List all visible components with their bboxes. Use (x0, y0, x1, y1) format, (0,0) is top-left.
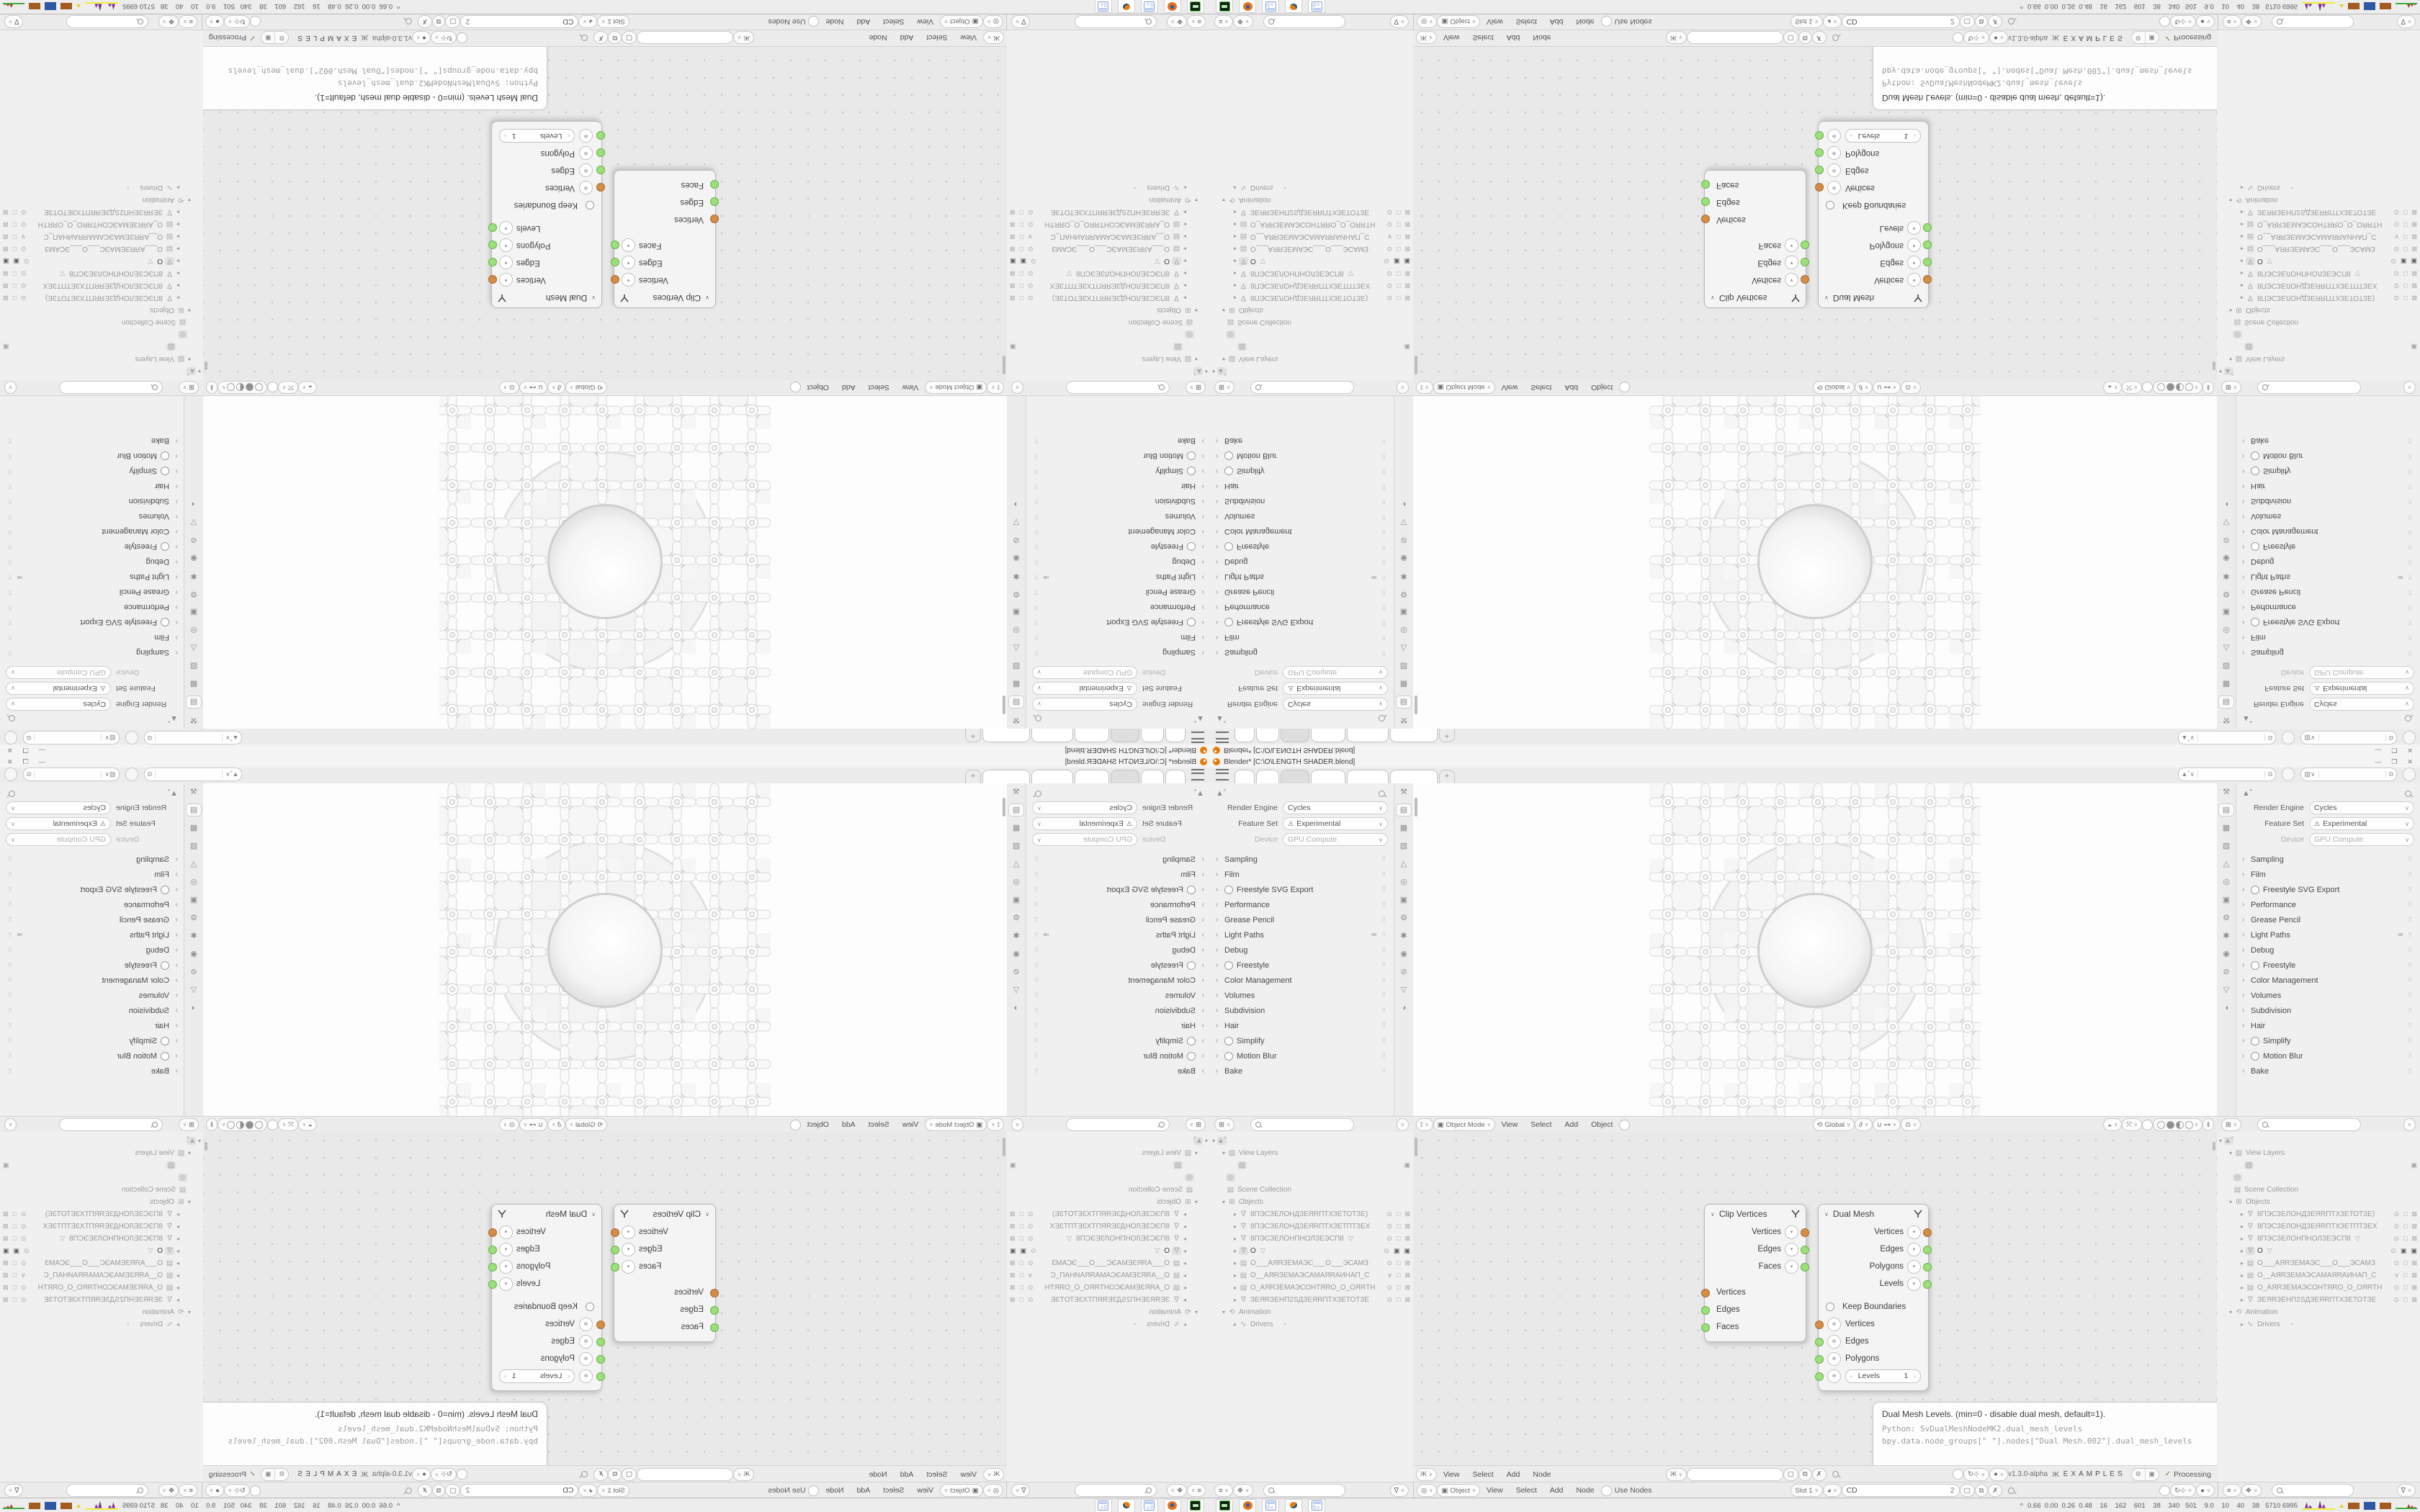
minimize-button[interactable]: — (2375, 747, 2381, 755)
expander-icon[interactable]: ^ (2020, 3, 2023, 11)
device-dropdown[interactable]: GPU Compute∨ (6, 666, 111, 679)
socket-polygons-in[interactable] (596, 148, 605, 157)
section-debug[interactable]: ›Debug⠿ (2242, 554, 2414, 570)
section-freestyle[interactable]: ›Freestyle⠿ (6, 539, 178, 554)
drivers-label[interactable]: Drivers (1250, 184, 1273, 192)
editor-type-button[interactable]: ⊞∨ (1186, 381, 1206, 394)
outliner-object-row[interactable]: ▸∇8ПЭСЗЕЛОНПНОЛЗЕЭСП8▽⊙□⊠ (1007, 1233, 1210, 1245)
shield-button[interactable]: ▢ (445, 15, 460, 28)
object-tab-icon[interactable]: ▣ (1397, 894, 1411, 906)
add-menu[interactable]: Add (1543, 17, 1570, 26)
draw-mode-button[interactable]: ●∨ (1989, 32, 2008, 45)
taskbar-calculator-app[interactable] (1262, 1499, 1279, 1512)
options-button[interactable]: ∨ (1011, 381, 1023, 394)
feature-set-dropdown[interactable]: ⚠ Experimental ∨ (1032, 817, 1137, 830)
menu-hamburger-icon[interactable] (1216, 769, 1229, 780)
new-scene-button[interactable] (125, 731, 138, 744)
view-layer-tab-icon[interactable]: ▧ (1397, 660, 1411, 672)
node-menu[interactable]: Node (1569, 17, 1600, 26)
workspace-tab-6[interactable] (1390, 770, 1438, 783)
link-menu-button[interactable]: ⊕ (1827, 181, 1841, 195)
node-dual-mesh[interactable]: ∨ Dual Mesh Vertices▾ Edges▾ Polygons▾ L… (491, 121, 602, 308)
material-shading-icon[interactable] (2176, 1121, 2184, 1129)
view-layer-tab-icon[interactable]: ▧ (187, 660, 201, 672)
filter-button[interactable]: ∇∨ (1390, 1484, 1409, 1497)
outliner-active-object-row[interactable]: ▸∇O▽⊙▣▣ (1210, 1245, 1413, 1257)
camera-toggle-icon[interactable]: ▣ (1404, 343, 1410, 351)
overlays-toggle-icon[interactable]: ⤧∨ (278, 1118, 298, 1131)
display-mode-button[interactable]: ≡∨ (1187, 15, 1206, 28)
add-workspace-button[interactable]: + (965, 729, 981, 742)
scene-root-icon[interactable]: ▲˚ (1217, 367, 1227, 375)
scene-icon[interactable]: ▲˚∨ (2179, 734, 2199, 742)
taskbar-calculator2-app[interactable] (1308, 1499, 1325, 1512)
view-menu[interactable]: View (910, 17, 940, 26)
collapse-icon[interactable]: ∨ (1824, 295, 1829, 302)
editor-type-button[interactable]: Ж∨ (1416, 1468, 1437, 1481)
node-editor-scrollbar[interactable] (1415, 356, 1417, 374)
workspace-tab-1[interactable] (1234, 729, 1255, 742)
section-color-management[interactable]: ›Color Management⠿ (1216, 973, 1388, 988)
world-icon[interactable]: ◎ (1226, 330, 1235, 338)
scene-icon[interactable]: ▲˚∨ (222, 734, 242, 742)
view-layer-tab-icon[interactable]: ▧ (187, 840, 201, 852)
section-motion-blur[interactable]: ›Motion Blur⠿ (1032, 449, 1204, 464)
animation-label[interactable]: Animation (1149, 196, 1181, 204)
material-name-field[interactable]: CD2 (460, 15, 578, 28)
properties-search[interactable] (1250, 381, 1354, 394)
unlink-icon[interactable]: ✗ (1812, 32, 1827, 45)
viewport-3d[interactable] (1413, 396, 2217, 729)
socket-vertices-out[interactable] (1801, 1228, 1809, 1237)
shader-type-dropdown[interactable]: ▣ Object∨ (940, 15, 983, 28)
filter-collection-button[interactable]: ❖∨ (158, 1484, 179, 1497)
taskbar-firefox-app[interactable] (1164, 1499, 1181, 1512)
section-color-management[interactable]: ›Color Management⠿ (1032, 524, 1204, 539)
node-tree-name-field[interactable] (637, 1468, 733, 1481)
scene-root-icon[interactable]: ▲˚ (1193, 1137, 1203, 1145)
world-tab-icon[interactable]: ◎ (187, 624, 201, 636)
pin-icon[interactable] (581, 35, 588, 41)
toggle-icon[interactable] (1224, 452, 1233, 461)
material-tab-icon[interactable]: ◑ (1009, 498, 1023, 510)
world-tab-icon[interactable]: ◎ (1397, 624, 1411, 636)
node-menu[interactable]: Node (819, 17, 850, 26)
tool-tab-icon[interactable]: ⚒ (1009, 714, 1023, 726)
socket-levels-in[interactable] (596, 131, 605, 140)
filter-button[interactable]: ∇∨ (2397, 1484, 2416, 1497)
toggle-icon[interactable] (1224, 618, 1233, 627)
disable-render-icon[interactable]: ⊠ (1010, 294, 1016, 302)
socket-polygons-in[interactable] (1815, 1355, 1824, 1364)
taskbar-blender-app[interactable] (1118, 1499, 1135, 1512)
view-layer-tab-icon[interactable]: ▧ (2219, 660, 2233, 672)
device-dropdown[interactable]: GPU Compute∨ (2309, 666, 2414, 679)
outliner-object-row[interactable]: ▸▤О__АЯRЗЕМАЭСАМАЯRАИНАП_С∨□⊠ (1007, 230, 1210, 243)
keep-boundaries-toggle[interactable] (1826, 1302, 1834, 1311)
workspace-tab-3-active[interactable] (1281, 729, 1309, 742)
menu-hamburger-icon[interactable] (1191, 732, 1204, 743)
editor-type-button[interactable]: ⊞∨ (2221, 1118, 2241, 1131)
section-freestyle-svg[interactable]: ›Freestyle SVG Export⠿ (6, 615, 178, 630)
device-dropdown[interactable]: GPU Compute ∨ (1032, 833, 1137, 846)
use-nodes-checkbox[interactable] (808, 17, 819, 27)
object-tab-icon[interactable]: ▣ (2219, 894, 2233, 906)
socket-vertices-in[interactable] (710, 1289, 719, 1297)
material-shading-icon[interactable] (2176, 384, 2184, 392)
section-grease-pencil[interactable]: ›Grease Pencil⠿ (1216, 912, 1388, 927)
data-tab-icon[interactable]: ▽ (187, 984, 201, 996)
viewport-scrollbar[interactable] (1415, 798, 1417, 816)
section-volumes[interactable]: ›Volumes⠿ (6, 988, 178, 1003)
workspace-tab-2[interactable] (1256, 770, 1279, 783)
add-workspace-button[interactable]: + (1439, 729, 1455, 742)
node-editor-scrollbar[interactable] (2213, 361, 2215, 370)
outliner-search[interactable] (66, 15, 148, 28)
section-light-paths[interactable]: ›Light Paths≔⠿ (6, 570, 178, 585)
overlay-button[interactable]: ●∨ (2196, 15, 2215, 28)
copy-scene-icon[interactable]: ⧉ (2264, 734, 2275, 742)
preset-buttons[interactable]: ⚙▣ (261, 32, 289, 45)
material-shading-icon[interactable] (236, 384, 244, 392)
increment-icon[interactable]: › (504, 1373, 506, 1380)
disable-viewport-icon[interactable]: □ (1020, 294, 1023, 302)
link-menu-button[interactable]: ⊕ (1827, 1318, 1841, 1331)
output-tab-icon[interactable]: ▦ (1397, 678, 1411, 690)
editor-type-button[interactable]: ⊞∨ (1214, 1118, 1234, 1131)
copy-view-layer-icon[interactable]: ⧉ (2385, 734, 2396, 742)
presets-icon[interactable]: ≔ (1039, 931, 1049, 939)
render-tab-icon[interactable]: ▤ (2219, 804, 2233, 816)
fake-user-button[interactable]: ▢ (1783, 32, 1798, 45)
search-circle-button[interactable] (790, 1120, 801, 1130)
section-freestyle[interactable]: ›Freestyle⠿ (1216, 539, 1388, 554)
physics-tab-icon[interactable]: ◉ (187, 552, 201, 564)
outliner-object-row[interactable]: ▸∇8ПЭСЗЕЛОНДЗЕЯRПТХЗЕТОТЗЕ)⊙□⊠ (2217, 1208, 2420, 1220)
keep-boundaries-toggle[interactable] (1826, 201, 1834, 210)
output-tab-icon[interactable]: ▦ (2219, 678, 2233, 690)
socket-vertices-out[interactable] (1923, 275, 1932, 284)
viewport-3d[interactable] (203, 396, 1007, 729)
view-layer-name-field[interactable] (2319, 732, 2385, 744)
outliner-active-object-row[interactable]: ▸∇O▽⊙▣▣ (0, 1245, 203, 1257)
overlay-button[interactable]: ●∨ (205, 15, 224, 28)
section-subdivision[interactable]: ›Subdivision⠿ (6, 1003, 178, 1018)
object-tab-icon[interactable]: ▣ (1009, 606, 1023, 618)
socket-menu-button[interactable]: ▾ (622, 1225, 635, 1239)
tree-type-button[interactable]: Ж∨ (1666, 1468, 1687, 1481)
render-engine-dropdown[interactable]: Cycles∨ (6, 698, 111, 711)
workspace-tab-4[interactable] (1075, 729, 1109, 742)
world-tab-icon[interactable]: ◎ (1009, 876, 1023, 888)
update-layout-button[interactable]: ↻⊹∨ (1963, 1468, 1989, 1481)
animation-label[interactable]: Animation (1149, 1308, 1181, 1316)
select-menu[interactable]: Select (877, 1486, 910, 1495)
objects-collection-label[interactable]: Objects (1239, 1198, 1263, 1206)
data-tab-icon[interactable]: ▽ (1009, 984, 1023, 996)
new-view-layer-button[interactable] (4, 731, 17, 744)
transform-orientation-dropdown[interactable]: ⟲ Global∨ (1813, 381, 1855, 394)
section-bake[interactable]: ›Bake⠿ (6, 433, 178, 449)
outliner-object-row[interactable]: ▸∇ЗЕЯRЗЕНП2SДЗЕЯRПТХЗЕТОТЗЕ⊙□⊠ (1007, 206, 1210, 218)
tool-tab-icon[interactable]: ⚒ (2219, 786, 2233, 798)
constraints-tab-icon[interactable]: ⊘ (1397, 966, 1411, 978)
socket-vertices-out[interactable] (1923, 1228, 1932, 1237)
outliner-object-row[interactable]: ▸∇8ПЭСЗЕЛОНДЗЕЯRПТХЗЕТПТЗЕХ⊙□⊠ (1210, 279, 1413, 292)
device-dropdown[interactable]: GPU Compute ∨ (1283, 666, 1388, 679)
socket-edges-out[interactable] (1801, 1246, 1809, 1254)
modifiers-tab-icon[interactable]: ⚙ (187, 588, 201, 600)
add-menu[interactable]: Add (1558, 1120, 1585, 1129)
outliner-object-row[interactable]: ▸▤О__АЯRЗЕМАЭСАМАЯRАИНАП_С∨□⊠ (2217, 230, 2420, 243)
outliner-active-object-row[interactable]: ▸∇O▽⊙▣▣ (1007, 255, 1210, 267)
section-freestyle-svg[interactable]: ›Freestyle SVG Export⠿ (1032, 615, 1204, 630)
section-volumes[interactable]: ›Volumes⠿ (1216, 988, 1388, 1003)
add-workspace-button[interactable]: + (1439, 770, 1455, 783)
section-simplify[interactable]: ›Simplify⠿ (1216, 1033, 1388, 1048)
hide-icon[interactable]: ⊙ (1028, 1210, 1034, 1218)
minimize-button[interactable]: — (39, 758, 45, 766)
shading-mode-switch[interactable]: ∨ (2153, 1118, 2202, 1131)
render-tab-icon[interactable]: ▤ (1009, 804, 1023, 816)
sverchok-node-editor[interactable]: ∨ Clip Vertices Vertices▾ Edges▾ Faces▾ … (1413, 1132, 2217, 1465)
section-sampling[interactable]: ›Sampling⠿ (1216, 852, 1388, 867)
select-menu[interactable]: Select (862, 383, 896, 392)
section-sampling[interactable]: ›Sampling⠿ (2242, 645, 2414, 660)
section-film[interactable]: ›Film⠿ (2242, 867, 2414, 882)
material-shading-icon[interactable] (236, 1121, 244, 1129)
options-button[interactable]: ∨ (1397, 381, 1409, 394)
socket-levels-out[interactable] (488, 1280, 497, 1289)
display-mode-button[interactable]: ≡∨ (179, 1484, 197, 1497)
add-workspace-button[interactable]: + (965, 770, 981, 783)
outliner-object-row[interactable]: ▸▤О_АЯRЗЕМАЭСОНТЯRО_О_ОЯRТН⊙□⊠ (1007, 218, 1210, 230)
section-performance[interactable]: ›Performance⠿ (6, 897, 178, 912)
node-editor-scrollbar[interactable] (2213, 1142, 2215, 1151)
view-layer-icon[interactable]: ▧∨ (101, 770, 118, 778)
socket-polygons-out[interactable] (488, 240, 497, 249)
modifiers-tab-icon[interactable]: ⚙ (1009, 588, 1023, 600)
section-color-management[interactable]: ›Color Management⠿ (6, 524, 178, 539)
snap-magnet-icon[interactable]: ∪ ⊶∨ (519, 1118, 547, 1131)
taskbar-firefox-app[interactable] (1164, 0, 1181, 14)
shading-mode-switch[interactable]: ∨ (2153, 381, 2202, 394)
viewport-scrollbar[interactable] (1003, 696, 1005, 714)
add-menu[interactable]: Add (894, 34, 920, 42)
unlink-icon[interactable]: ✗ (593, 32, 608, 45)
material-tab-icon[interactable]: ◑ (1397, 1002, 1411, 1014)
editor-type-button[interactable]: Ж∨ (983, 32, 1004, 45)
section-light-paths[interactable]: ›Light Paths≔⠿ (1032, 927, 1204, 942)
section-motion-blur[interactable]: ›Motion Blur⠿ (2242, 449, 2414, 464)
view-layer-tab-icon[interactable]: ▧ (1009, 660, 1023, 672)
view-layer-icon[interactable]: ▧ (1173, 343, 1183, 351)
feature-set-dropdown[interactable]: ⚠Experimental∨ (6, 682, 111, 695)
close-button[interactable]: ✕ (2407, 747, 2413, 755)
display-mode-button[interactable]: ≡∨ (1214, 15, 1233, 28)
section-film[interactable]: ›Film⠿ (1216, 630, 1388, 645)
solid-shading-icon[interactable] (2166, 384, 2174, 392)
section-subdivision[interactable]: ›Subdivision⠿ (2242, 494, 2414, 509)
circle-button[interactable] (457, 1469, 467, 1480)
objects-collection-label[interactable]: Objects (1157, 1198, 1181, 1206)
tree-type-button[interactable]: Ж∨ (733, 32, 754, 45)
snap-node-button[interactable]: ↻⊹∨ (2170, 15, 2196, 28)
section-light-paths[interactable]: ›Light Paths≔⠿ (2242, 570, 2414, 585)
socket-edges-in[interactable] (1701, 197, 1710, 206)
search-circle-button[interactable] (1619, 382, 1630, 393)
taskbar-blender-app[interactable] (1118, 0, 1135, 14)
section-simplify[interactable]: ›Simplify⠿ (1032, 1033, 1204, 1048)
section-grease-pencil[interactable]: ›Grease Pencil⠿ (2242, 585, 2414, 600)
increment-icon[interactable]: › (1914, 133, 1916, 140)
constraints-tab-icon[interactable]: ⊘ (1009, 966, 1023, 978)
socket-vertices-out[interactable] (1801, 275, 1809, 284)
physics-tab-icon[interactable]: ◉ (187, 948, 201, 960)
proportional-edit-icon[interactable]: ⊙ ∨ (1901, 381, 1921, 394)
outliner-object-row[interactable]: ▸▤О_АЯRЗЕМАЭСОНТЯRО_О_ОЯRТН⊙□⊠ (1210, 218, 1413, 230)
pin-icon[interactable] (1035, 791, 1041, 797)
outliner-object-row[interactable]: ▸∇ЗЕЯRЗЕНП2SДЗЕЯRПТХЗЕТОТЗЕ⊙□⊠ (0, 206, 203, 218)
examples-menu[interactable]: EXAMPLES (295, 1470, 357, 1478)
node-editor-scrollbar[interactable] (1003, 356, 1005, 374)
device-dropdown[interactable]: GPU Compute ∨ (1032, 666, 1137, 679)
section-film[interactable]: ›Film⠿ (6, 630, 178, 645)
section-subdivision[interactable]: ›Subdivision⠿ (6, 494, 178, 509)
disable-viewport-icon[interactable]: □ (1397, 294, 1400, 302)
snap-node-button[interactable]: ↻⊹∨ (2170, 1484, 2196, 1497)
workspace-tab-5[interactable] (1347, 770, 1389, 783)
scene-tab-icon[interactable]: △ (1009, 642, 1023, 654)
outliner-object-row[interactable]: ▸▤О___АЯRЗЕМАЭС___О___ЭСАМЗ⊙□⊠ (1007, 1257, 1210, 1269)
material-tab-icon[interactable]: ◑ (2219, 498, 2233, 510)
section-hair[interactable]: ›Hair⠿ (1216, 479, 1388, 494)
proportional-edit-icon[interactable]: ⊙ ∨ (1901, 1118, 1921, 1131)
outliner-active-object-row[interactable]: ▸∇O▽⊙▣▣ (2217, 255, 2420, 267)
socket-vertices-out[interactable] (488, 1228, 497, 1237)
workspace-tab-6[interactable] (1390, 729, 1438, 742)
outliner-object-row[interactable]: ▸∇8ПЭСЗЕЛОНДЗЕЯRПТХЗЕТОТЗЕ)⊙□⊠ (2217, 292, 2420, 304)
filter-collection-button[interactable]: ❖∨ (1167, 15, 1188, 28)
mode-dropdown[interactable]: ▣ Object Mode∨ (1433, 381, 1495, 394)
outliner-object-row[interactable]: ▸▤О___АЯRЗЕМАЭС___О___ЭСАМЗ⊙□⊠ (1210, 243, 1413, 255)
node-menu[interactable]: Node (819, 1486, 850, 1495)
presets-icon[interactable]: ≔ (1039, 573, 1049, 581)
copy-view-layer-icon[interactable]: ⧉ (24, 734, 35, 742)
socket-levels-out[interactable] (1923, 223, 1932, 232)
section-motion-blur[interactable]: ›Motion Blur⠿ (2242, 1048, 2414, 1063)
outliner-object-row[interactable]: ▸∇8ПЭСЗЕЛОНПНОЛЗЕЭСП8▽⊙□⊠ (2217, 1233, 2420, 1245)
toggle-icon[interactable] (1224, 467, 1233, 476)
scene-root-icon[interactable]: ▲˚ (1217, 1137, 1227, 1145)
node-dual-mesh[interactable]: ∨ Dual Mesh Vertices▾ Edges▾ Polygons▾ L… (1818, 121, 1929, 308)
pin-icon[interactable] (1832, 35, 1839, 41)
material-tab-icon[interactable]: ◑ (1009, 1002, 1023, 1014)
viewport-scrollbar[interactable] (1003, 798, 1005, 816)
material-name-field[interactable]: CD2 (460, 1484, 578, 1497)
pin-icon[interactable] (9, 716, 15, 722)
physics-tab-icon[interactable]: ◉ (2219, 552, 2233, 564)
socket-edges-out[interactable] (1801, 258, 1809, 266)
object-menu[interactable]: Object (801, 1120, 835, 1129)
outliner-object-row[interactable]: ▸∇8ПЭСЗЕЛОНДЗЕЯRПТХЗЕТОТЗЕ)⊙□⊠ (1210, 1208, 1413, 1220)
shield-button[interactable]: ▢ (445, 1484, 460, 1497)
browse-material-button[interactable]: ◕∨ (1823, 15, 1842, 28)
section-film[interactable]: ›Film⠿ (1032, 867, 1204, 882)
scene-tab-icon[interactable]: △ (2219, 642, 2233, 654)
properties-search[interactable] (1066, 1118, 1170, 1131)
section-debug[interactable]: ›Debug⠿ (6, 554, 178, 570)
mode-dropdown[interactable]: ▣ Object Mode∨ (925, 381, 987, 394)
draw-mode-button[interactable]: ●∨ (412, 1468, 431, 1481)
wireframe-shading-icon[interactable] (2157, 384, 2165, 392)
section-color-management[interactable]: ›Color Management⠿ (6, 973, 178, 988)
options-button[interactable]: ∨ (4, 381, 17, 394)
update-layout-button[interactable]: ↻⊹∨ (431, 32, 457, 45)
overlay-button[interactable]: ●∨ (2196, 1484, 2215, 1497)
output-tab-icon[interactable]: ▦ (2219, 822, 2233, 834)
editor-type-button[interactable]: ◎∨ (1417, 15, 1437, 28)
pause-render-button[interactable]: ‖ (2202, 1118, 2214, 1131)
section-grease-pencil[interactable]: ›Grease Pencil⠿ (1032, 912, 1204, 927)
drivers-label[interactable]: Drivers (1147, 1320, 1170, 1328)
select-menu[interactable]: Select (1524, 383, 1558, 392)
presets-icon[interactable]: ≔ (1371, 573, 1381, 581)
section-volumes[interactable]: ›Volumes⠿ (1216, 509, 1388, 524)
constraints-tab-icon[interactable]: ⊘ (2219, 534, 2233, 546)
outliner-object-row[interactable]: ▸▤О__АЯRЗЕМАЭСАМАЯRАИНАП_С∨□⊠ (1210, 1269, 1413, 1282)
view-menu[interactable]: View (896, 383, 926, 392)
unlink-icon[interactable]: ✗ (418, 1484, 432, 1497)
menu-hamburger-icon[interactable] (1191, 769, 1204, 780)
outliner-object-row[interactable]: ▸▤О_АЯRЗЕМАЭСОНТЯRО_О_ОЯRТН⊙□⊠ (1210, 1282, 1413, 1294)
shading-mode-switch[interactable]: ∨ (218, 1118, 267, 1131)
outliner-object-row[interactable]: ▸∇8ПЭСЗЕЛОНДЗЕЯRПТХЗЕТОТЗЕ)⊙□⊠ (0, 1208, 203, 1220)
examples-menu[interactable]: EXAMPLES (295, 34, 357, 42)
render-tab-icon[interactable]: ▤ (1397, 804, 1411, 816)
section-film[interactable]: ›Film⠿ (1216, 867, 1388, 882)
section-debug[interactable]: ›Debug⠿ (1032, 942, 1204, 958)
scene-name-field[interactable] (2198, 768, 2264, 780)
levels-number-field[interactable]: ‹ Levels 1 › (1845, 1369, 1921, 1383)
editor-type-button[interactable]: ⊞∨ (1214, 381, 1234, 394)
section-sampling[interactable]: ›Sampling⠿ (1032, 852, 1204, 867)
taskbar-firefox-app[interactable] (1239, 1499, 1256, 1512)
socket-vertices-in[interactable] (596, 183, 605, 192)
view-layer-icon[interactable]: ▧∨ (2301, 770, 2318, 778)
editor-type-button[interactable]: ⟟∨ (1416, 1118, 1433, 1131)
toggle-icon[interactable] (1187, 543, 1196, 552)
socket-faces-in[interactable] (710, 1323, 719, 1332)
filter-collection-button[interactable]: ❖∨ (2241, 15, 2262, 28)
world-icon[interactable]: ◎ (1185, 1174, 1194, 1182)
unlink-icon[interactable]: ✗ (1812, 1468, 1827, 1481)
options-button[interactable]: ∨ (4, 1118, 17, 1131)
restore-button[interactable]: ❒ (2391, 758, 2397, 766)
select-menu[interactable]: Select (1466, 34, 1500, 42)
data-tab-icon[interactable]: ▽ (1397, 516, 1411, 528)
section-hair[interactable]: ›Hair⠿ (1032, 1018, 1204, 1033)
taskbar-console-app[interactable] (1187, 1499, 1204, 1512)
feature-set-dropdown[interactable]: ⚠ Experimental ∨ (1032, 682, 1137, 695)
object-tab-icon[interactable]: ▣ (187, 894, 201, 906)
section-motion-blur[interactable]: ›Motion Blur⠿ (1216, 1048, 1388, 1063)
render-engine-dropdown[interactable]: Cycles ∨ (1032, 698, 1137, 711)
copy-view-layer-icon[interactable]: ⧉ (2385, 770, 2396, 778)
section-freestyle[interactable]: ›Freestyle⠿ (1032, 539, 1204, 554)
data-tab-icon[interactable]: ▽ (1397, 984, 1411, 996)
section-simplify[interactable]: ›Simplify⠿ (6, 1033, 178, 1048)
